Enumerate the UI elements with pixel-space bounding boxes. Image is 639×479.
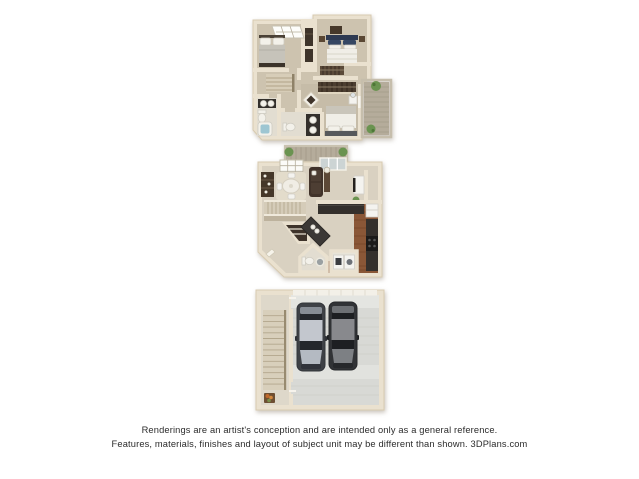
floorplans-svg: [0, 0, 639, 479]
disclaimer-line-2: Features, materials, finishes and layout…: [0, 438, 639, 451]
dining-chair: [288, 173, 295, 178]
dining-chair: [277, 183, 282, 190]
closet-shelves: [305, 28, 313, 62]
mirror: [351, 93, 356, 98]
hood: [300, 350, 322, 364]
floorplan-rendering-canvas: Renderings are an artist's conception an…: [0, 0, 639, 479]
throw-pillow: [312, 171, 316, 175]
tv-console: [353, 176, 364, 194]
potted-plant: [285, 148, 294, 157]
stair-railing: [284, 310, 286, 390]
main-stairs: [264, 200, 306, 221]
roof: [300, 320, 323, 341]
garage-stairs: [263, 310, 286, 390]
kitchen-wall: [316, 200, 382, 204]
rear-window: [300, 314, 322, 320]
stair-railing: [292, 74, 295, 92]
floor-lamp: [324, 167, 330, 173]
laundry-closet: [331, 251, 357, 272]
front-bumper: [333, 363, 353, 368]
upper-balcony: [362, 80, 391, 137]
garage-floor-plan: [256, 290, 384, 410]
rear-window: [332, 313, 354, 319]
upper-floor-plan: [253, 15, 391, 140]
dining-area: [261, 172, 306, 200]
toilet: [258, 110, 266, 123]
hood: [332, 349, 354, 363]
dining-chair: [300, 183, 305, 190]
potted-plant: [367, 125, 376, 134]
console-table: [324, 172, 330, 192]
disclaimer-line-1: Renderings are an artist's conception an…: [0, 424, 639, 437]
closet-hanging-clothes: [318, 82, 356, 94]
island-sink: [311, 225, 315, 229]
range: [366, 236, 378, 251]
sink: [268, 101, 274, 107]
door-leaf: [289, 390, 296, 392]
bed-footboard: [259, 63, 285, 67]
stairwell-opening: [264, 216, 306, 221]
sink: [261, 101, 267, 107]
toilet: [283, 123, 295, 131]
bathtub: [258, 122, 272, 136]
closet-hanging-clothes: [320, 66, 344, 75]
sink: [310, 127, 317, 134]
main-floor-plan: [258, 146, 382, 277]
door-leaf: [289, 297, 296, 299]
garage-door: [293, 290, 377, 296]
dining-chair: [288, 194, 295, 199]
bed-right: [326, 35, 358, 63]
front-bumper: [301, 364, 321, 369]
upper-hall-stairs: [266, 74, 295, 92]
sliding-glass-door: [320, 158, 346, 170]
stair-railing: [264, 214, 306, 216]
headboard: [325, 131, 357, 136]
silver-car: [295, 303, 327, 371]
master-bed: [325, 106, 357, 136]
trunk: [332, 306, 354, 313]
entry-table-with-flowers: [264, 393, 275, 403]
island-sink: [315, 229, 319, 233]
windshield: [300, 341, 322, 350]
windshield: [332, 340, 354, 349]
nightstand: [359, 36, 365, 42]
pedestal-sink: [316, 258, 324, 266]
potted-plant: [339, 148, 348, 157]
dresser: [330, 26, 342, 34]
roof: [332, 319, 355, 340]
wall-stub: [364, 170, 368, 204]
staircase: [266, 74, 292, 92]
potted-plant: [371, 81, 381, 91]
sink: [310, 117, 317, 124]
bakers-rack: [261, 172, 274, 197]
tv-screen: [353, 178, 356, 192]
trunk: [300, 307, 322, 314]
dark-gray-car: [327, 302, 359, 370]
stair-railing: [264, 200, 306, 202]
nightstand: [319, 36, 325, 42]
